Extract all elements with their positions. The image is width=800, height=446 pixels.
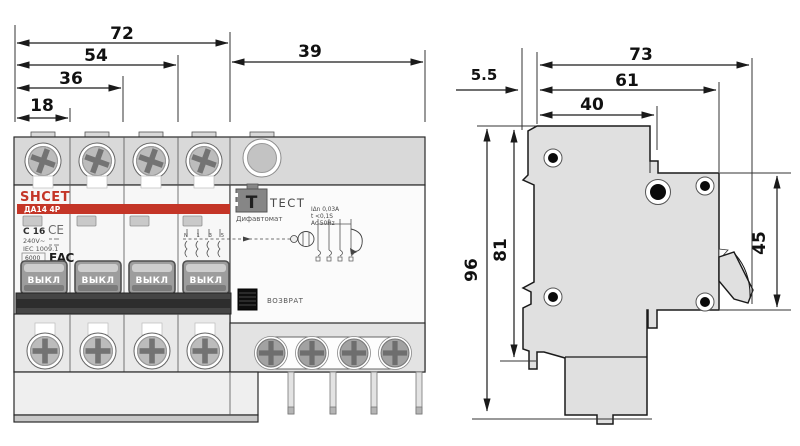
- terminal-screw: [187, 333, 223, 369]
- voltage-label: 240V~: [23, 237, 45, 245]
- rivet: [544, 149, 562, 167]
- toggle-label: ВЫКЛ: [135, 276, 168, 286]
- din-latch-lever: [719, 249, 753, 303]
- reset-button: [238, 289, 257, 310]
- test-label: ТЕСТ: [269, 196, 305, 210]
- reset-label: ВОЗВРАТ: [267, 297, 304, 305]
- dim-label-36: 36: [59, 69, 83, 89]
- test-button-label: T: [246, 193, 258, 213]
- dim-width-36: 36: [17, 69, 121, 89]
- rcd-pins: [288, 372, 422, 414]
- terminal-screw: [27, 333, 63, 369]
- dim-width-18: 18: [17, 96, 68, 118]
- dim-depth-73: 73: [540, 45, 749, 65]
- terminal-screw: [379, 337, 412, 370]
- din-base: [14, 372, 258, 422]
- dim-height-81: 81: [491, 130, 514, 357]
- dim-label-39: 39: [298, 42, 322, 62]
- dim-label-96: 96: [462, 258, 482, 282]
- spec-line-2: t <0,1S: [311, 214, 333, 220]
- dim-label-40: 40: [580, 95, 604, 115]
- dim-label-54: 54: [84, 46, 108, 66]
- front-view: SHCET ДА14 4Р C 16 240V~ IEC 1009.1 6000…: [14, 132, 425, 422]
- toggle-base-bar: [16, 293, 231, 314]
- rivet: [696, 177, 714, 195]
- toggle-handle-2: ВЫКЛ: [75, 261, 121, 294]
- rivet-large: [646, 180, 671, 205]
- dim-label-5-5: 5.5: [471, 66, 498, 84]
- spec-line-1: IΔn 0,03A: [311, 207, 339, 213]
- toggle-handle-4: ВЫКЛ: [183, 261, 229, 294]
- dim-height-96: 96: [462, 129, 487, 411]
- toggle-label: ВЫКЛ: [189, 276, 222, 286]
- dim-label-73: 73: [629, 45, 653, 65]
- toggle-label: ВЫКЛ: [81, 276, 114, 286]
- terminal-screw: [80, 333, 116, 369]
- terminal-screw: [338, 337, 371, 370]
- dim-label-61: 61: [615, 71, 639, 91]
- rivet: [544, 288, 562, 306]
- terminal-screw: [134, 333, 170, 369]
- technical-drawing-page: 72 54 36 18 39: [0, 0, 800, 446]
- dim-height-45: 45: [750, 176, 777, 307]
- ce-mark: CE: [48, 223, 64, 237]
- dim-width-39: 39: [232, 42, 423, 62]
- terminal-screw: [255, 337, 288, 370]
- side-profile: [523, 126, 719, 424]
- circuit-breaker-drawing: 72 54 36 18 39: [0, 0, 800, 446]
- dim-label-81: 81: [491, 238, 511, 262]
- dim-width-72: 72: [17, 24, 228, 44]
- dim-depth-40: 40: [540, 95, 654, 115]
- dim-label-18: 18: [30, 96, 54, 116]
- toggle-handle-1: ВЫКЛ: [21, 261, 67, 294]
- toggle-label: ВЫКЛ: [27, 276, 60, 286]
- toggle-handle-3: ВЫКЛ: [129, 261, 175, 294]
- dim-depth-61: 61: [540, 71, 716, 91]
- device-type-label: Дифавтомат: [236, 215, 282, 223]
- brand-logo: SHCET: [20, 190, 70, 205]
- front-view-dimensions: 72 54 36 18 39: [15, 24, 425, 122]
- rivet: [696, 293, 714, 311]
- rcd-top-port: [243, 139, 281, 177]
- dim-label-45: 45: [750, 231, 770, 255]
- model-label: ДА14 4Р: [24, 205, 61, 214]
- rating-label: C 16: [23, 227, 45, 237]
- terminal-screw: [296, 337, 329, 370]
- dim-width-54: 54: [17, 46, 176, 66]
- dim-rail-offset-5-5: 5.5: [456, 66, 518, 90]
- dim-label-72: 72: [110, 24, 134, 44]
